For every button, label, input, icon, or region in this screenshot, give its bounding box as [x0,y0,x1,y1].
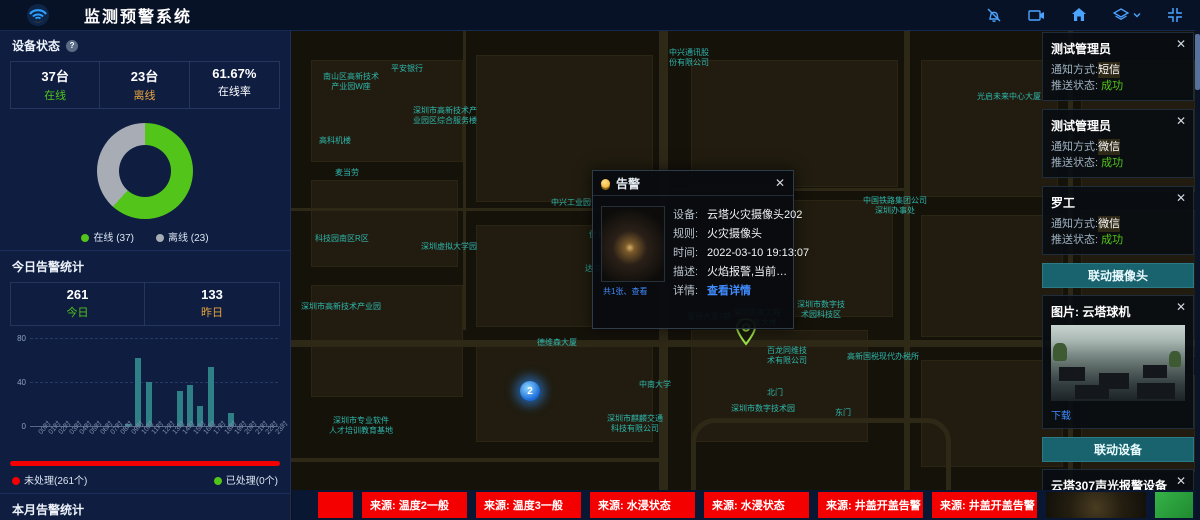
bars [30,338,278,426]
row-label: 通知方式: [1051,218,1098,230]
x-tick-label: 21时 [247,427,257,453]
map-label: 中南大学 [639,380,671,390]
alert-field-value: 2022-03-10 19:13:07 [707,247,809,259]
linked-camera-card: ✕ 图片: 云塔球机 下载 [1042,295,1194,429]
x-tick-label: 07时 [102,427,112,453]
alarm-lamp-icon [601,179,610,188]
stat-label: 昨日 [147,304,277,320]
stat-cell: 133昨日 [145,283,279,325]
alert-field-label: 规则: [673,225,707,244]
notification-row: 推送状态: 成功 [1051,232,1185,248]
row-value: 微信 [1098,139,1120,155]
bar-slot [113,338,123,426]
stat-value: 23台 [102,66,186,85]
x-tick-label: 19时 [226,427,236,453]
map-label: 北门 [767,388,783,398]
notification-card: ✕罗工通知方式: 微信推送状态: 成功 [1042,186,1194,255]
bar-slot [61,338,71,426]
bar-slot [102,338,112,426]
x-tick-label: 10时 [133,427,143,453]
ticker-thumbnail-image[interactable] [1155,492,1193,518]
stat-cell: 261今日 [11,283,145,325]
ticker-items: 来源: 温度2一般来源: 温度3一般来源: 水浸状态来源: 水浸状态来源: 井盖… [362,492,1037,518]
notification-recipient: 测试管理员 [1051,40,1185,57]
row-value: 成功 [1101,157,1123,169]
alert-field-label: 描述: [673,263,707,282]
ticker-thumbnail-image[interactable] [1046,492,1146,518]
view-details-link[interactable]: 查看详情 [707,285,751,297]
x-tick-label: 09时 [123,427,133,453]
stat-label: 在线率 [192,83,277,99]
alert-field-row: 设备:云塔火灾摄像头202 [673,206,785,225]
handled-legend: 已处理(0个) [214,472,278,487]
bar-slot [175,338,185,426]
legend-item: 在线 (37) [81,229,134,244]
row-value: 成功 [1101,234,1123,246]
download-link[interactable]: 下载 [1051,407,1185,422]
close-icon[interactable]: ✕ [1176,191,1186,205]
close-icon[interactable]: ✕ [1176,114,1186,128]
bar-slot [216,338,226,426]
x-tick-label: 14时 [175,427,185,453]
x-tick-label: 00时 [30,427,40,453]
bar-slot [237,338,247,426]
legend-item: 离线 (23) [156,229,209,244]
bar-slot [40,338,50,426]
page-title: 监测预警系统 [84,3,192,27]
map-label: 东门 [835,408,851,418]
layers-icon[interactable] [1112,6,1130,24]
ticker-item[interactable] [318,492,353,518]
stat-value: 61.67% [192,66,277,81]
alert-field-label: 时间: [673,244,707,263]
bar-slot [257,338,267,426]
stat-label: 今日 [13,304,142,320]
row-label: 通知方式: [1051,141,1098,153]
bar-slot [133,338,143,426]
alarm-ticker: 来源: 温度2一般来源: 温度3一般来源: 水浸状态来源: 水浸状态来源: 井盖… [292,490,1200,520]
bar-slot [144,338,154,426]
map-label: 中国铁路集团公司 深圳办事处 [863,196,927,216]
ticker-item[interactable]: 来源: 水浸状态 [704,492,809,518]
fullscreen-exit-icon[interactable] [1166,6,1184,24]
alert-field-row: 描述:火焰报警,当前触发值为... [673,263,785,282]
stat-label: 在线 [13,87,97,103]
alert-fields: 设备:云塔火灾摄像头202规则:火灾摄像头时间:2022-03-10 19:13… [673,206,785,301]
ticker-item[interactable]: 来源: 水浸状态 [590,492,695,518]
x-tick-label: 12时 [154,427,164,453]
video-camera-icon[interactable] [1027,6,1046,24]
x-tick-label: 08时 [113,427,123,453]
row-value: 短信 [1098,62,1120,78]
map-label: 百龙同维技 术有限公司 [767,346,807,366]
chevron-down-icon[interactable] [1132,10,1142,20]
right-sidebar: ✕测试管理员通知方式: 短信推送状态: 成功✕测试管理员通知方式: 微信推送状态… [1042,32,1194,520]
ticker-item[interactable]: 来源: 井盖开盖告警 [932,492,1037,518]
bar-slot [185,338,195,426]
bar[interactable] [208,367,214,426]
row-label: 推送状态: [1051,157,1101,169]
scrollbar-thumb[interactable] [1195,34,1200,90]
bar-slot [92,338,102,426]
bar-slot [206,338,216,426]
camera-card-title: 图片: 云塔球机 [1051,303,1185,320]
close-icon[interactable]: ✕ [1176,300,1186,314]
today-alerts-stats: 261今日133昨日 [10,282,280,326]
stat-cell: 23台离线 [100,62,189,108]
map-label: 深圳市高新技术产 业园区综合服务楼 [413,106,477,126]
alert-popup-body: 共1张、查看 设备:云塔火灾摄像头202规则:火灾摄像头时间:2022-03-1… [593,196,793,328]
x-tick-label: 06时 [92,427,102,453]
x-tick-label: 03时 [61,427,71,453]
bar-slot [226,338,236,426]
map-label: 中兴工业园 [551,198,591,208]
alert-popup-titlebar: 告警 ✕ [593,171,793,196]
legend-dot [81,234,89,242]
row-value: 成功 [1101,80,1123,92]
scrollbar-track[interactable] [1195,30,1200,520]
stat-value: 261 [13,287,142,302]
ticker-item[interactable]: 来源: 温度3一般 [476,492,581,518]
notification-recipient: 测试管理员 [1051,117,1185,134]
x-tick-label: 18时 [216,427,226,453]
header-actions [985,6,1184,24]
ticker-item[interactable]: 来源: 井盖开盖告警 [818,492,923,518]
stat-value: 133 [147,287,277,302]
linked-devices-header: 联动设备 [1042,437,1194,462]
notification-row: 推送状态: 成功 [1051,155,1185,171]
map-label: 科技园南区R区 [315,234,369,244]
map-label: 高新国税现代办税所 [847,352,919,362]
stat-cell: 61.67%在线率 [190,62,279,108]
bar-slot [123,338,133,426]
bar-slot [195,338,205,426]
x-tick-label: 22时 [257,427,267,453]
device-status-stats: 37台在线23台离线61.67%在线率 [10,61,280,109]
today-alerts-title: 今日告警统计 [12,258,84,275]
left-sidebar: 设备状态 ? 37台在线23台离线61.67%在线率 在线 (37)离线 (23… [0,30,291,520]
notification-row: 通知方式: 微信 [1051,139,1185,155]
notification-row: 通知方式: 短信 [1051,62,1185,78]
alert-popup: 告警 ✕ 共1张、查看 设备:云塔火灾摄像头202规则:火灾摄像头时间:2022… [592,170,794,329]
alert-field-value: 火焰报警,当前触发值为... [707,263,791,282]
y-tick-label: 0 [22,422,26,431]
alert-field-row: 时间:2022-03-10 19:13:07 [673,244,785,263]
map-label: 中兴通讯股 份有限公司 [669,48,709,68]
device-status-donut-chart [97,123,193,219]
alert-field-row: 规则:火灾摄像头 [673,225,785,244]
home-icon[interactable] [1070,6,1088,24]
unhandled-progress-bar [10,461,280,466]
bar-slot [82,338,92,426]
x-tick-label: 11时 [144,427,154,453]
row-label: 通知方式: [1051,64,1098,76]
month-alerts-title: 本月告警统计 [12,501,84,518]
close-icon[interactable]: ✕ [1176,474,1186,488]
map-label: 深圳市麒麟交通 科技有限公司 [607,414,663,434]
stat-value: 37台 [13,66,97,85]
map-cluster-marker[interactable]: 2 [520,381,540,401]
alert-field-row: 详情:查看详情 [673,282,785,301]
map-label: 德维森大厦 [537,338,577,348]
unhandled-legend: 未处理(261个) [12,472,87,487]
alert-popup-title: 告警 [616,175,640,192]
map-label: 平安银行 [391,64,423,74]
notification-row: 推送状态: 成功 [1051,78,1185,94]
y-tick-label: 40 [17,378,26,387]
map-label: 深圳市数字技 术园科技区 [797,300,845,320]
bar-slot [71,338,81,426]
notification-row: 通知方式: 微信 [1051,216,1185,232]
header: 监测预警系统 [0,0,1200,31]
camera-snapshot-image[interactable] [1051,325,1185,401]
bar-slot [51,338,61,426]
notification-card: ✕测试管理员通知方式: 微信推送状态: 成功 [1042,109,1194,178]
x-axis-labels: 00时01时02时03时04时05时06时07时08时09时10时11时12时1… [30,427,278,453]
bar-slot [154,338,164,426]
map-label: 高科机楼 [319,136,351,146]
x-tick-label: 13时 [164,427,174,453]
bar-plot-area: 04080 [30,338,278,427]
help-icon[interactable]: ? [66,40,78,52]
map-label: 深圳市专业软件 人才培训教育基地 [329,416,393,436]
section-today-alerts: 今日告警统计 [0,251,290,278]
map-label: 深圳虚拟大学园 [421,242,477,252]
x-tick-label: 17时 [206,427,216,453]
map-label: 麦当劳 [335,168,359,178]
bar-slot [30,338,40,426]
bar-slot [247,338,257,426]
ticker-item[interactable]: 来源: 温度2一般 [362,492,467,518]
row-label: 推送状态: [1051,234,1101,246]
x-tick-label: 20时 [237,427,247,453]
linked-camera-header: 联动摄像头 [1042,263,1194,288]
bar-slot [268,338,278,426]
y-tick-label: 80 [17,334,26,343]
section-month-alerts: 本月告警统计 [0,494,290,520]
map-label: 光启未来中心大厦 [977,92,1041,102]
stat-cell: 37台在线 [11,62,100,108]
progress-legend: 未处理(261个) 已处理(0个) [12,472,278,487]
alert-field-label: 详情: [673,282,707,301]
monitoring-dashboard: 监测预警系统 [0,0,1200,520]
red-dot [12,477,20,485]
notification-cards: ✕测试管理员通知方式: 短信推送状态: 成功✕测试管理员通知方式: 微信推送状态… [1042,32,1194,255]
legend-dot [156,234,164,242]
green-dot [214,477,222,485]
notification-recipient: 罗工 [1051,194,1185,211]
device-status-title: 设备状态 [12,37,60,54]
close-icon[interactable]: ✕ [775,176,785,190]
map-label: 深圳市数字技术园 [731,404,795,414]
donut-legend: 在线 (37)离线 (23) [0,229,290,244]
stat-label: 离线 [102,87,186,103]
x-tick-label: 04时 [71,427,81,453]
x-tick-label: 15时 [185,427,195,453]
x-tick-label: 16时 [195,427,205,453]
row-label: 推送状态: [1051,80,1101,92]
alert-snapshot-caption[interactable]: 共1张、查看 [603,286,647,297]
notification-card: ✕测试管理员通知方式: 短信推送状态: 成功 [1042,32,1194,101]
section-device-status: 设备状态 ? [0,30,290,57]
row-value: 微信 [1098,216,1120,232]
alert-field-value: 火灾摄像头 [707,228,762,240]
map-label: 深圳市高新技术产业园 [301,302,381,312]
x-tick-label: 01时 [40,427,50,453]
app-logo-icon [26,3,50,27]
alert-field-label: 设备: [673,206,707,225]
x-tick-label: 02时 [51,427,61,453]
hourly-alert-bar-chart: 04080 00时01时02时03时04时05时06时07时08时09时10时1… [30,338,278,453]
close-icon[interactable]: ✕ [1176,37,1186,51]
bar[interactable] [135,358,141,426]
map-label: 南山区高新技术 产业园W座 [323,72,379,92]
bell-off-icon[interactable] [985,6,1003,24]
alert-snapshot-image[interactable] [601,206,665,282]
x-tick-label: 05时 [82,427,92,453]
bar-slot [164,338,174,426]
alert-field-value: 云塔火灾摄像头202 [707,209,802,221]
x-tick-label: 23时 [268,427,278,453]
